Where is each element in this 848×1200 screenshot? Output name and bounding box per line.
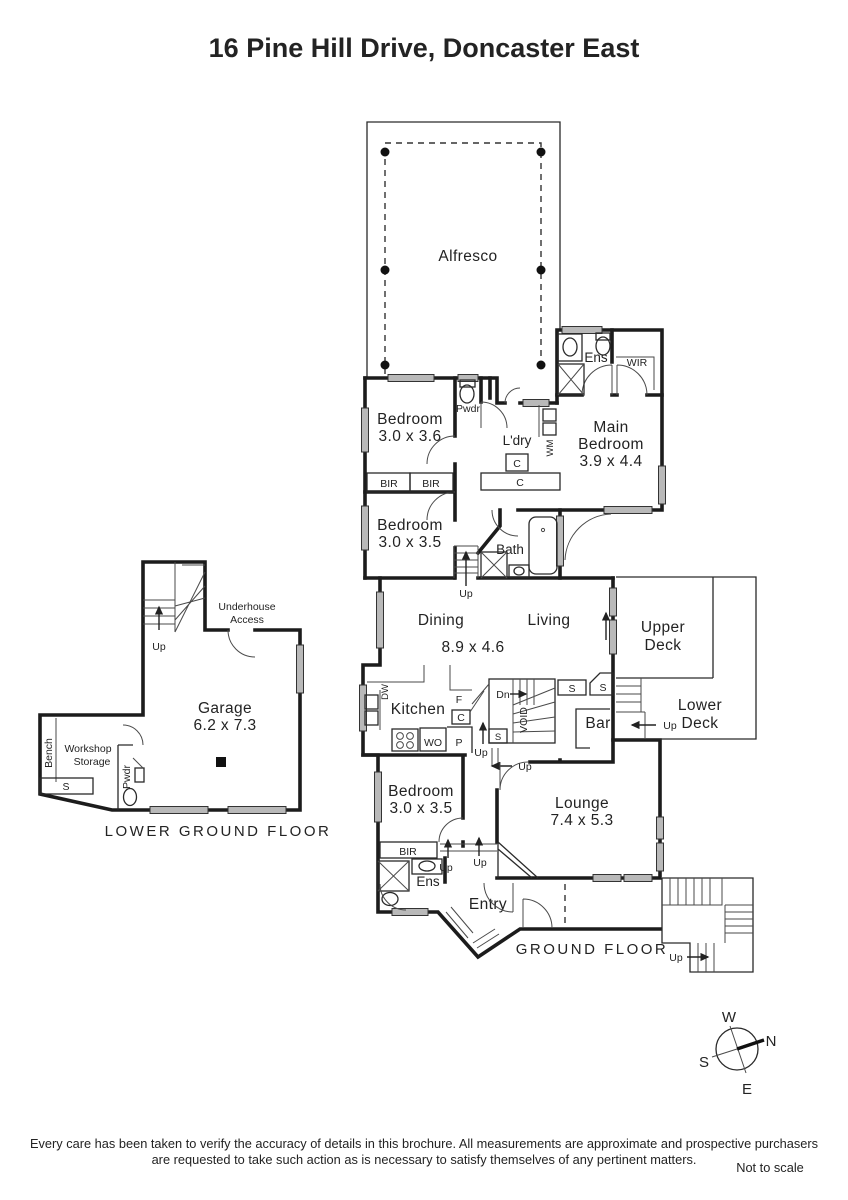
label-wo: WO bbox=[424, 737, 442, 749]
basin bbox=[419, 861, 435, 871]
label-dn: Dn bbox=[496, 689, 510, 701]
door-leaf bbox=[470, 691, 484, 712]
post bbox=[537, 148, 546, 157]
label-fridge: F bbox=[456, 694, 462, 706]
floor-label-ground: GROUND FLOOR bbox=[516, 941, 669, 958]
window bbox=[624, 875, 652, 882]
room-label-wir: WIR bbox=[627, 357, 648, 369]
label-c-small: C bbox=[513, 458, 521, 470]
door-leaf bbox=[472, 684, 489, 704]
label-c-kitchen: C bbox=[457, 712, 465, 724]
door-arc bbox=[439, 818, 463, 842]
room-dim-bedroom1: 3.0 x 3.6 bbox=[378, 428, 441, 445]
shower-glass bbox=[378, 861, 409, 891]
washing-machine bbox=[543, 423, 556, 435]
window bbox=[657, 817, 664, 839]
room-label-ldry: L'dry bbox=[503, 433, 532, 448]
cooktop-burner bbox=[397, 733, 404, 740]
label-s-box: S bbox=[495, 732, 501, 743]
basin bbox=[514, 567, 524, 575]
window bbox=[610, 620, 617, 654]
room-label-workshop-1: Workshop bbox=[64, 743, 111, 755]
room-label-bedroom1: Bedroom bbox=[377, 411, 443, 428]
room-label-bedroom-ground: Bedroom bbox=[388, 783, 454, 800]
room-label-lounge: Lounge bbox=[555, 795, 609, 812]
compass-cross bbox=[712, 1026, 746, 1073]
label-bir-ground: BIR bbox=[399, 846, 417, 858]
label-s-lower: S bbox=[62, 781, 69, 793]
window bbox=[388, 375, 434, 382]
room-label-lower-deck-1: Lower bbox=[678, 697, 722, 714]
compass-e: E bbox=[742, 1081, 752, 1098]
room-label-garage: Garage bbox=[198, 700, 252, 717]
door-arc bbox=[228, 630, 255, 657]
room-dim-dining-living: 8.9 x 4.6 bbox=[441, 639, 504, 656]
compass-s: S bbox=[699, 1054, 709, 1071]
room-dim-lounge: 7.4 x 5.3 bbox=[550, 812, 613, 829]
label-bench: Bench bbox=[43, 738, 55, 768]
lower-ground-floor-plan: Up Underhouse Access Garage 6.2 x 7.3 Be… bbox=[40, 562, 331, 840]
deck-stairs bbox=[616, 678, 645, 739]
window bbox=[375, 772, 382, 822]
cooktop-burner bbox=[397, 742, 404, 749]
wall bbox=[481, 378, 490, 402]
label-pantry: P bbox=[455, 737, 462, 749]
label-underhouse-1: Underhouse bbox=[218, 601, 275, 613]
room-dim-garage: 6.2 x 7.3 bbox=[193, 717, 256, 734]
label-bir1: BIR bbox=[380, 478, 398, 490]
room-label-pwdr-upper: Pwdr bbox=[456, 403, 480, 415]
room-label-main-bedroom-2: Bedroom bbox=[578, 436, 644, 453]
floorplan-page: 16 Pine Hill Drive, Doncaster East Alfre… bbox=[0, 0, 848, 1200]
window bbox=[610, 588, 617, 616]
window bbox=[377, 592, 384, 648]
compass-north-needle bbox=[737, 1040, 764, 1049]
room-dim-main-bedroom: 3.9 x 4.4 bbox=[579, 453, 642, 470]
shower-glass bbox=[481, 552, 507, 578]
label-wm: WM bbox=[545, 439, 556, 456]
room-dim-bedroom-ground: 3.0 x 3.5 bbox=[389, 800, 452, 817]
floor-plan-svg: 16 Pine Hill Drive, Doncaster East Alfre… bbox=[0, 0, 848, 1200]
window bbox=[659, 466, 666, 504]
upper-floor-plan: Alfresco Ens bbox=[362, 122, 666, 600]
room-label-upper-deck-2: Deck bbox=[645, 637, 682, 654]
toilet bbox=[124, 789, 137, 806]
room-label-bath: Bath bbox=[496, 542, 524, 557]
window bbox=[604, 507, 652, 514]
door-arc bbox=[427, 492, 455, 520]
room-label-bar: Bar bbox=[585, 715, 610, 732]
floor-label-lower-ground: LOWER GROUND FLOOR bbox=[105, 823, 332, 840]
footer: Every care has been taken to verify the … bbox=[30, 1136, 818, 1175]
window bbox=[392, 909, 428, 916]
post bbox=[537, 361, 546, 370]
door-arc bbox=[380, 884, 406, 910]
basin bbox=[563, 338, 577, 356]
room-label-workshop-2: Storage bbox=[74, 756, 111, 768]
laundry-trough bbox=[543, 409, 556, 421]
cooktop-burner bbox=[407, 742, 414, 749]
label-up-hall-1: Up bbox=[439, 862, 453, 874]
bathtub bbox=[529, 517, 557, 574]
disclaimer-line1: Every care has been taken to verify the … bbox=[30, 1136, 818, 1151]
label-c-long: C bbox=[516, 477, 524, 489]
door-arc bbox=[123, 725, 143, 745]
room-label-pwdr-lower: Pwdr bbox=[121, 765, 133, 789]
door-arc bbox=[505, 388, 520, 403]
room-label-ens-upper: Ens bbox=[584, 350, 608, 365]
cooktop bbox=[392, 729, 418, 751]
disclaimer-line2: are requested to take such action as is … bbox=[152, 1152, 697, 1167]
label-bir2: BIR bbox=[422, 478, 440, 490]
post bbox=[381, 148, 390, 157]
wall bbox=[40, 562, 300, 810]
room-label-main-bedroom-1: Main bbox=[593, 419, 628, 436]
toilet bbox=[460, 385, 474, 403]
room-label-alfresco: Alfresco bbox=[438, 248, 497, 265]
room-label-living: Living bbox=[528, 612, 571, 629]
label-up-kitchen: Up bbox=[474, 747, 488, 759]
post bbox=[216, 757, 226, 767]
post bbox=[381, 361, 390, 370]
stairs bbox=[143, 562, 205, 632]
room-label-kitchen: Kitchen bbox=[391, 701, 446, 718]
compass-n: N bbox=[766, 1033, 777, 1050]
door-arc bbox=[565, 514, 611, 560]
label-s2: S bbox=[599, 682, 606, 694]
window bbox=[297, 645, 304, 693]
garage-door bbox=[150, 807, 208, 814]
door-arc bbox=[582, 365, 612, 395]
not-to-scale: Not to scale bbox=[736, 1160, 804, 1175]
room-label-lower-deck-2: Deck bbox=[682, 715, 719, 732]
compass-w: W bbox=[722, 1009, 737, 1026]
window bbox=[593, 875, 621, 882]
room-dim-bedroom2: 3.0 x 3.5 bbox=[378, 534, 441, 551]
understair-triangle bbox=[498, 842, 538, 878]
window bbox=[362, 506, 369, 550]
label-void: VOID bbox=[518, 707, 530, 733]
post bbox=[381, 266, 390, 275]
door-arc bbox=[523, 899, 552, 928]
label-up-hall-2: Up bbox=[473, 857, 487, 869]
steps bbox=[492, 748, 498, 766]
page-title: 16 Pine Hill Drive, Doncaster East bbox=[209, 33, 640, 63]
window bbox=[657, 843, 664, 871]
basin bbox=[135, 768, 144, 782]
door-arc bbox=[617, 365, 647, 395]
room-label-bedroom2: Bedroom bbox=[377, 517, 443, 534]
post bbox=[537, 266, 546, 275]
room-label-ens-ground: Ens bbox=[416, 874, 440, 889]
garage-door bbox=[228, 807, 286, 814]
label-up-external: Up bbox=[669, 952, 683, 964]
door-arc bbox=[481, 402, 507, 428]
door-leaf bbox=[133, 758, 143, 768]
label-up-deck: Up bbox=[663, 720, 677, 732]
bath-tap bbox=[541, 528, 544, 531]
shower-glass bbox=[558, 364, 584, 395]
window bbox=[523, 400, 549, 407]
label-underhouse-2: Access bbox=[230, 614, 264, 626]
label-dw: DW bbox=[380, 684, 391, 700]
compass: W N S E bbox=[699, 1009, 776, 1098]
label-up-lower: Up bbox=[152, 641, 166, 653]
room-label-upper-deck-1: Upper bbox=[641, 619, 685, 636]
label-s1: S bbox=[568, 683, 575, 695]
window bbox=[362, 408, 369, 452]
label-up-upper: Up bbox=[459, 588, 473, 600]
ground-floor-plan: Dining Living 8.9 x 4.6 Upper Deck Lower… bbox=[360, 577, 757, 972]
room-label-dining: Dining bbox=[418, 612, 464, 629]
cooktop-burner bbox=[407, 733, 414, 740]
